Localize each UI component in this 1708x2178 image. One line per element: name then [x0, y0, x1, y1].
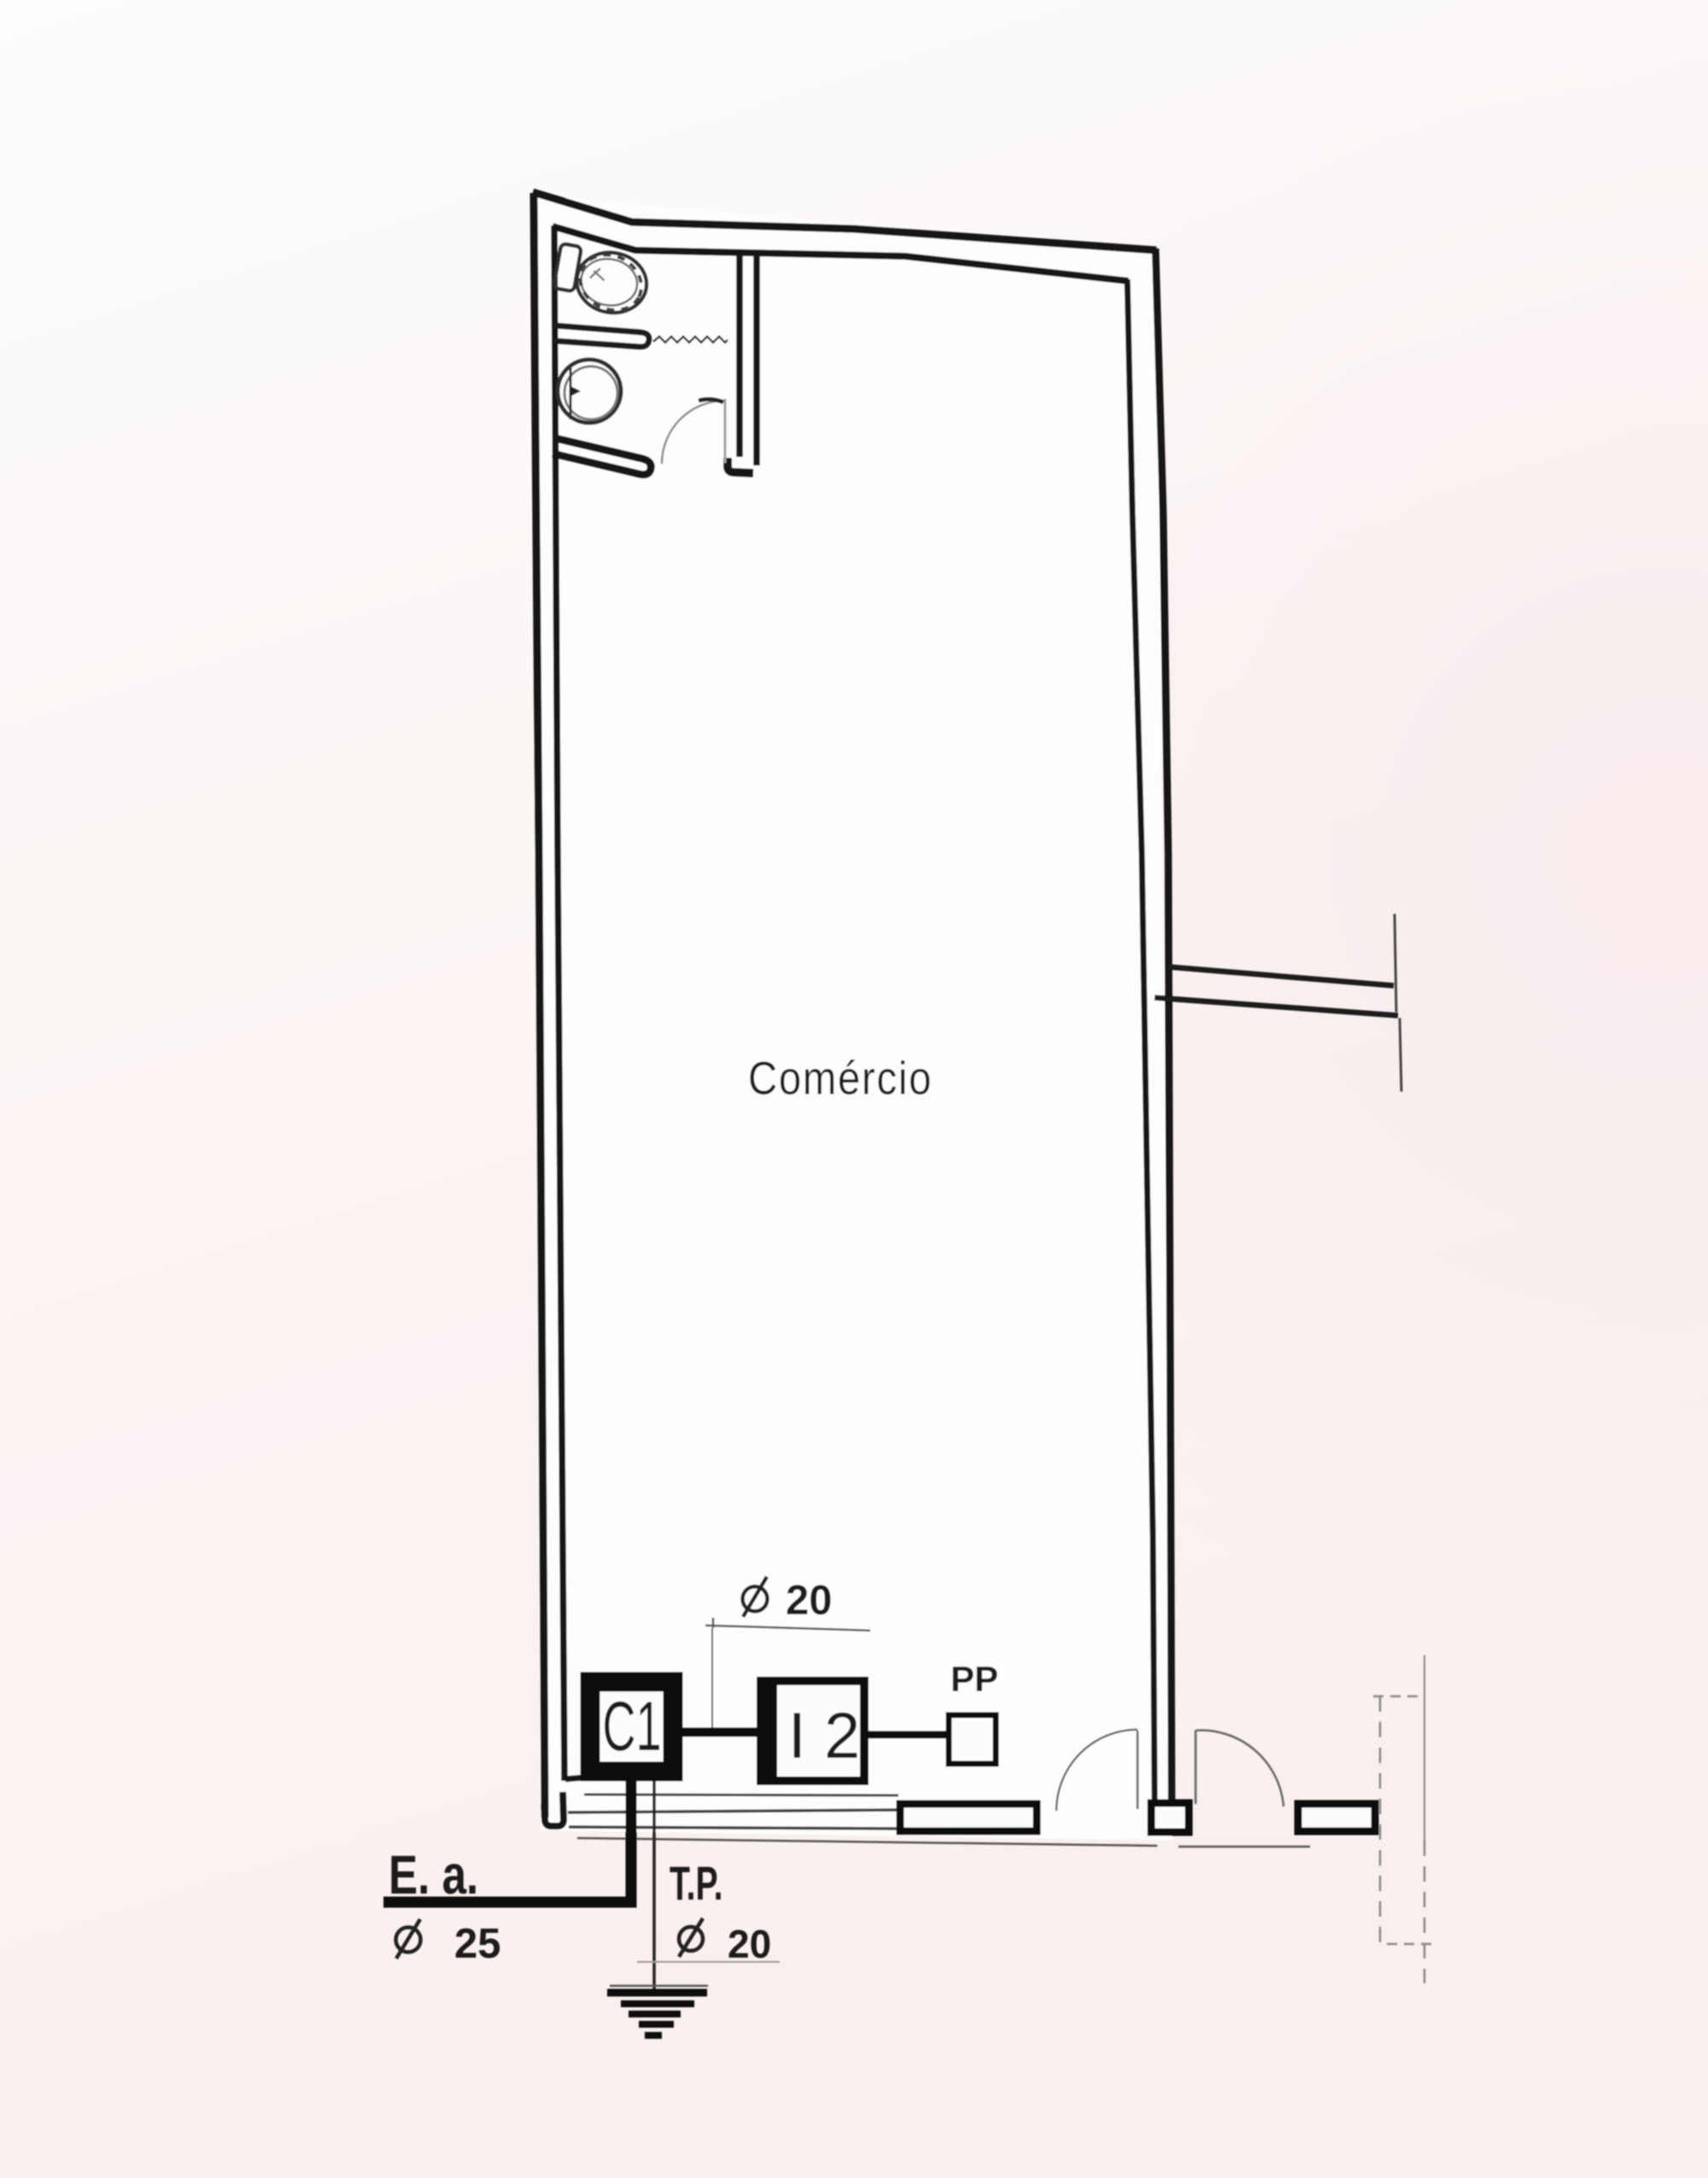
svg-text:Comércio: Comércio — [748, 1052, 933, 1104]
svg-text:I 2: I 2 — [788, 1700, 861, 1772]
svg-text:20: 20 — [728, 1922, 771, 1966]
svg-text:PP: PP — [951, 1659, 998, 1699]
svg-text:T.P.: T.P. — [670, 1857, 722, 1911]
svg-text:E. a.: E. a. — [389, 1846, 478, 1906]
svg-text:20: 20 — [786, 1578, 833, 1624]
svg-text:25: 25 — [454, 1921, 501, 1967]
svg-text:C1: C1 — [602, 1687, 661, 1765]
